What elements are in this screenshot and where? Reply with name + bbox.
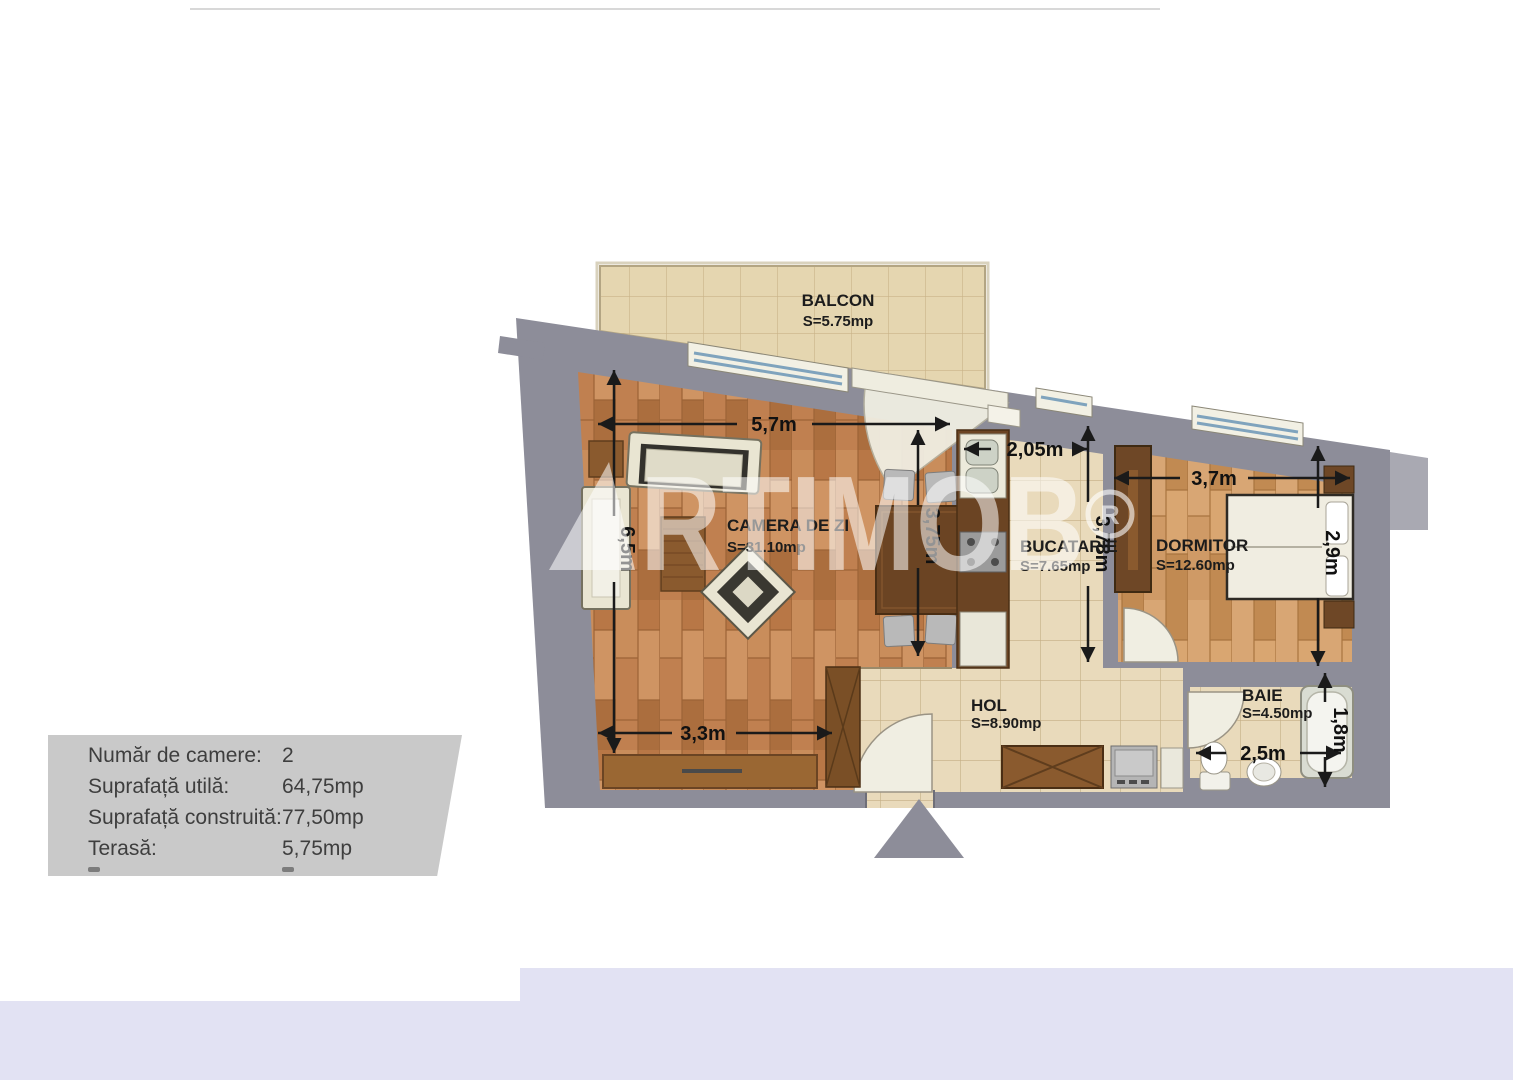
info-row-suprafata-construita: Suprafață construită: 77,50mp [48, 802, 462, 833]
info-label: Suprafață utilă: [88, 771, 229, 802]
dim-label: 1,8m [1329, 707, 1351, 753]
nightstand-top [1324, 466, 1354, 493]
room-area: S=4.50mp [1242, 705, 1312, 722]
watermark-text: RTIMOB [640, 448, 1085, 599]
dim-label: 3,7m [1191, 468, 1237, 490]
dim-label: 2,5m [1240, 743, 1286, 765]
info-label: Număr de camere: [88, 740, 262, 771]
room-area: S=8.90mp [971, 715, 1041, 732]
room-area: S=12.60mp [1156, 557, 1235, 574]
bottom-strip-right [520, 968, 1513, 1080]
info-row-camere: Număr de camere: 2 [48, 740, 462, 771]
tv-cabinet [603, 755, 817, 788]
hall-wardrobe [826, 667, 860, 787]
room-name: DORMITOR [1156, 536, 1248, 555]
registered-trademark-letter: R [1100, 500, 1120, 530]
info-row-suprafata-utila: Suprafață utilă: 64,75mp [48, 771, 462, 802]
info-row-terasa: Terasă: 5,75mp [48, 833, 462, 864]
nightstand-bottom [1324, 601, 1354, 628]
info-label: Suprafață construită: [88, 802, 282, 833]
room-name: HOL [971, 696, 1007, 715]
clipped-row-mark [88, 867, 100, 872]
washing-machine [1111, 746, 1157, 788]
wall-block-right [1390, 452, 1428, 530]
room-area: S=5.75mp [803, 313, 873, 330]
info-value: 2 [282, 740, 294, 771]
info-label: Terasă: [88, 833, 157, 864]
info-value: 64,75mp [282, 771, 364, 802]
bottom-strip-left [0, 1001, 520, 1080]
dim-label: 2,9m [1321, 530, 1343, 576]
page-canvas: 5,7m 6,5m 3,75m 3,3m 2,05m 3,78m [0, 0, 1513, 1080]
info-value: 5,75mp [282, 833, 352, 864]
room-name: BALCON [802, 291, 875, 310]
fridge [960, 612, 1006, 666]
hall-cabinet [1002, 746, 1103, 788]
dim-label: 3,3m [680, 723, 726, 745]
dim-label: 5,7m [751, 414, 797, 436]
hall-small-cabinet [1161, 748, 1183, 788]
floor-plan: 5,7m 6,5m 3,75m 3,3m 2,05m 3,78m [0, 0, 1513, 1080]
room-name: BAIE [1242, 686, 1283, 705]
info-panel: Număr de camere: 2 Suprafață utilă: 64,7… [48, 735, 462, 876]
info-value: 77,50mp [282, 802, 364, 833]
clipped-row-mark [282, 867, 294, 872]
